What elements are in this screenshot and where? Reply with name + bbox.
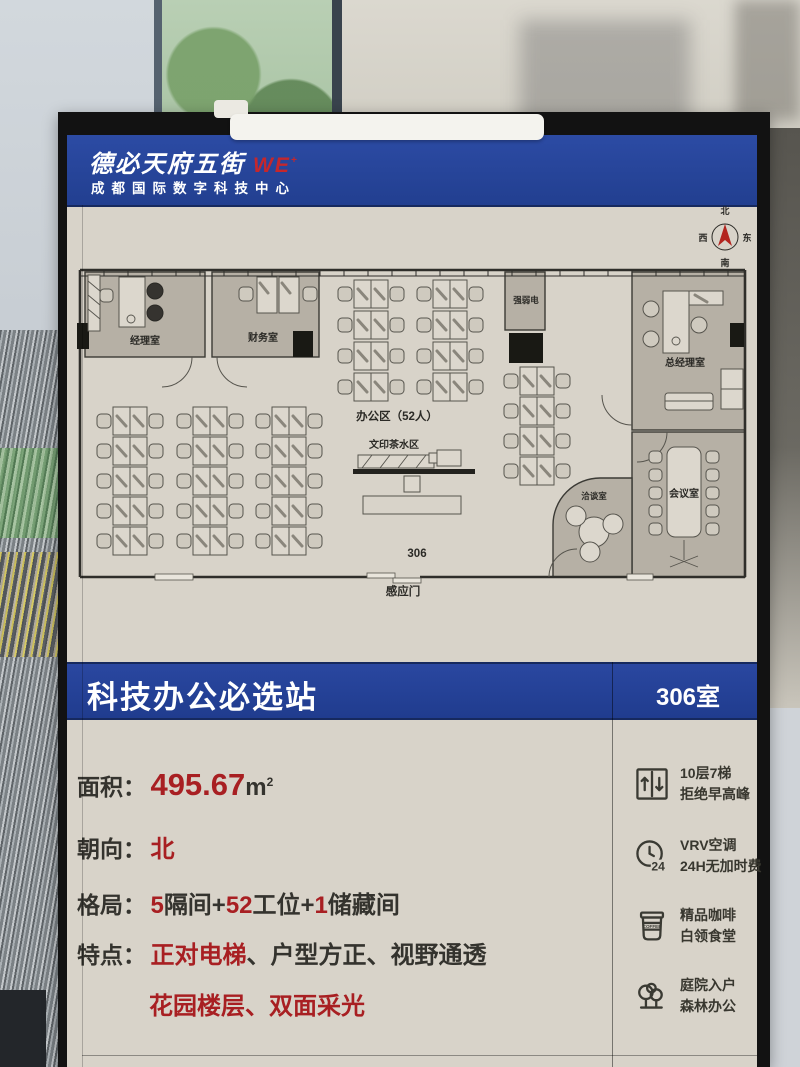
area-label: 面积： — [77, 774, 146, 800]
brand-logo: 德必天府五街WE+ — [89, 144, 299, 179]
brand-subtitle: 成都国际数字科技中心 — [91, 177, 296, 197]
features-line1: 正对电梯、户型方正、视野通透 — [150, 942, 486, 969]
detail-area-row: 面积： 495.67m2 — [77, 767, 273, 807]
label-suite-number: 306 — [407, 548, 426, 560]
detail-facing-row: 朝向： 北 — [77, 829, 174, 869]
amenity-line2: 拒绝早高峰 — [680, 784, 750, 805]
amenity-line1: 庭院入户 — [680, 975, 736, 996]
label-negotiate-room: 洽谈室 — [581, 491, 607, 501]
label-gm-room: 总经理室 — [665, 356, 705, 369]
label-print-tea: 文印茶水区 — [369, 438, 419, 451]
amenity-line1: 10层7梯 — [680, 763, 750, 784]
sensor-door-leaf — [367, 573, 395, 578]
label-office-area: 办公区（52人） — [356, 409, 438, 423]
brand-mark: WE — [253, 154, 291, 177]
detail-layout-row: 格局： 5隔间+52工位+1储藏间 — [77, 885, 400, 925]
compass-west: 西 — [698, 233, 707, 243]
coffee-icon: COFFEE — [635, 909, 669, 943]
floorplan-poster: 德必天府五街WE+ 成都国际数字科技中心 北 西 东 南 — [58, 112, 770, 1067]
poster-fold-line — [82, 1055, 757, 1056]
poster-right-shadow — [770, 128, 800, 708]
amenity-line1: 精品咖啡 — [680, 905, 736, 926]
glass-reflection — [735, 0, 800, 120]
poster-inner: 德必天府五街WE+ 成都国际数字科技中心 北 西 东 南 — [67, 135, 757, 1067]
banner-room-number: 306室 — [627, 677, 749, 712]
amenity-coffee: COFFEE 精品咖啡 白领食堂 — [635, 905, 755, 947]
striped-carpet — [0, 330, 64, 1067]
amenity-line2: 森林办公 — [680, 996, 736, 1017]
facing-value: 北 — [150, 836, 174, 863]
brand-mark-sup: + — [291, 155, 299, 166]
brand-header: 德必天府五街WE+ 成都国际数字科技中心 — [67, 135, 757, 207]
elevator-icon — [635, 767, 669, 801]
poster-fold-line — [82, 205, 83, 1067]
carpet-green-band — [0, 448, 64, 538]
label-finance-room: 财务室 — [247, 331, 278, 344]
wall-clip — [230, 114, 544, 140]
amenity-hvac: 24 VRV空调 24H无加时费 — [635, 835, 755, 877]
detail-features-row2: 花园楼层、双面采光 — [149, 986, 365, 1026]
area-unit: m2 — [245, 774, 273, 801]
trees-icon — [635, 979, 669, 1013]
area-value: 495.67 — [150, 767, 245, 802]
clock-24-text: 24 — [651, 860, 665, 873]
label-manager-room: 经理室 — [130, 334, 160, 347]
coffee-text: COFFEE — [643, 924, 662, 929]
facing-label: 朝向： — [77, 836, 146, 862]
clock-24h-icon: 24 — [635, 839, 669, 873]
brand-name: 德必天府五街 — [89, 151, 245, 178]
storage-block — [509, 333, 543, 363]
detail-features-row: 特点： 正对电梯、户型方正、视野通透 — [77, 935, 486, 975]
layout-value: 5隔间+52工位+1储藏间 — [150, 892, 399, 919]
label-utility-room: 强弱电 — [513, 295, 539, 305]
amenity-line2: 24H无加时费 — [680, 856, 762, 877]
label-meeting-room: 会议室 — [669, 487, 699, 500]
layout-label: 格局： — [77, 892, 146, 918]
dark-floor-corner — [0, 990, 46, 1067]
poster-fold-line — [612, 662, 613, 1067]
banner-title: 科技办公必选站 — [87, 672, 318, 717]
floor-plan: 经理室 财务室 强弱电 总经理室 会议室 洽谈室 办公区（52人） 文印茶水区 … — [67, 245, 757, 640]
amenity-garden: 庭院入户 森林办公 — [635, 975, 755, 1017]
amenity-line2: 白领食堂 — [680, 926, 736, 947]
carpet-yellow-band — [0, 552, 64, 657]
features-line2: 花园楼层、双面采光 — [149, 993, 365, 1020]
features-label: 特点： — [77, 942, 146, 968]
amenity-elevator: 10层7梯 拒绝早高峰 — [635, 763, 755, 805]
label-entry-door: 感应门 — [386, 584, 421, 598]
sensor-door-leaf — [393, 578, 421, 583]
compass-east: 东 — [742, 232, 751, 243]
headline-banner: 科技办公必选站 306室 — [67, 662, 757, 720]
amenity-line1: VRV空调 — [680, 835, 762, 856]
compass-north: 北 — [720, 205, 729, 216]
